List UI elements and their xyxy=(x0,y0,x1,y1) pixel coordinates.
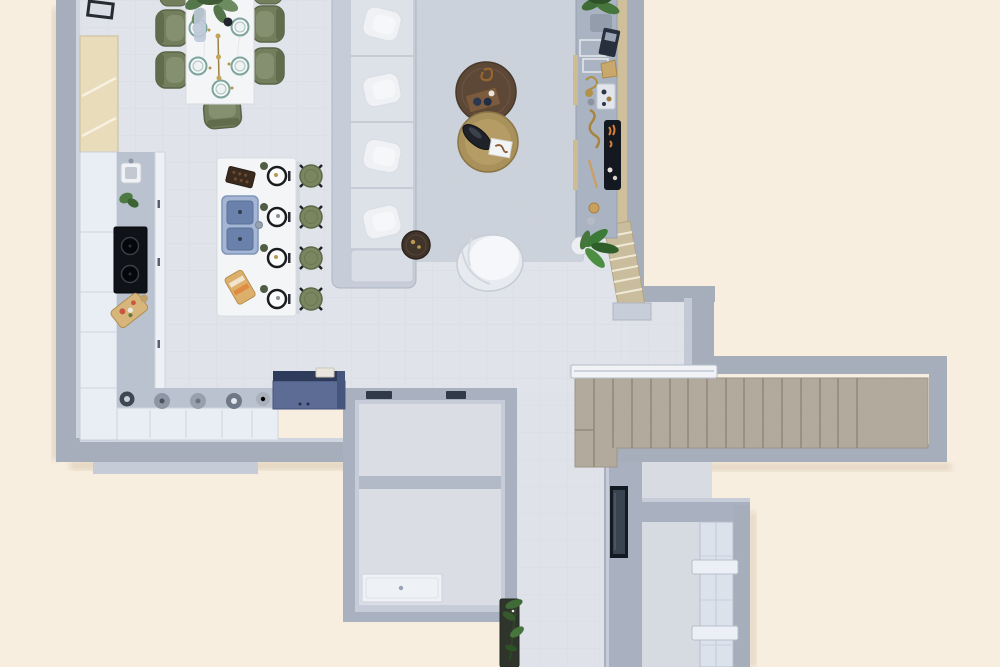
pantry-cabinet xyxy=(80,36,118,152)
wall-art-frame xyxy=(86,0,115,20)
wardrobe-shelf xyxy=(692,560,738,574)
console-bowl-gray xyxy=(588,99,595,106)
floor-entry-vestibule xyxy=(642,462,712,504)
console-tray3 xyxy=(597,84,615,109)
sofa-chaise xyxy=(351,250,413,282)
wall-entry-right xyxy=(733,505,750,667)
white-book xyxy=(489,138,512,157)
wardrobe-shelf xyxy=(692,626,738,640)
blue-cabinet xyxy=(273,368,345,409)
console-bowl2 xyxy=(589,203,599,213)
shower-tray xyxy=(362,574,442,602)
side-table xyxy=(402,231,430,259)
counter-bottom-face xyxy=(117,408,278,440)
cooktop xyxy=(114,227,147,293)
fireplace xyxy=(604,120,621,190)
console-bowl-gold xyxy=(585,89,593,97)
coffee-table-brass xyxy=(458,112,518,172)
floor-plan-canvas xyxy=(0,0,1000,667)
exterior-step xyxy=(93,462,258,474)
storage-room-floor xyxy=(359,404,501,476)
cabinet-run xyxy=(80,152,117,440)
floor-entry-room xyxy=(642,522,700,667)
console-bowl3 xyxy=(587,217,595,225)
entry-steps-landing xyxy=(613,303,651,320)
block-divider-wall xyxy=(359,476,501,489)
wall-mirror xyxy=(610,486,628,558)
counter-left-face xyxy=(155,152,165,390)
wall-stairs-top xyxy=(698,356,947,374)
floor-plan-render xyxy=(0,0,1000,667)
island-sink xyxy=(222,196,263,254)
stair-railing xyxy=(569,364,717,379)
media-console xyxy=(571,0,621,271)
bathroom-storage-block xyxy=(343,388,517,622)
